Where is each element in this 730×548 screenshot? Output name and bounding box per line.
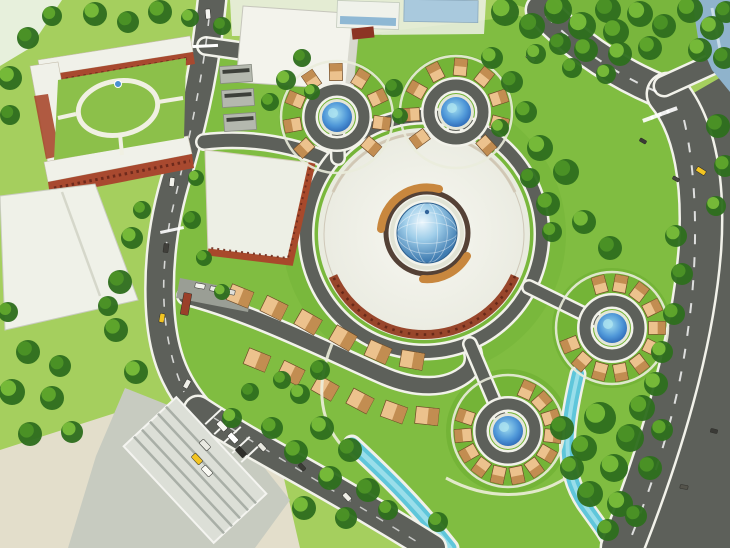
aerial-architectural-rendering xyxy=(0,0,730,548)
central-dome-plaza xyxy=(318,128,530,340)
scene-svg xyxy=(0,0,730,548)
